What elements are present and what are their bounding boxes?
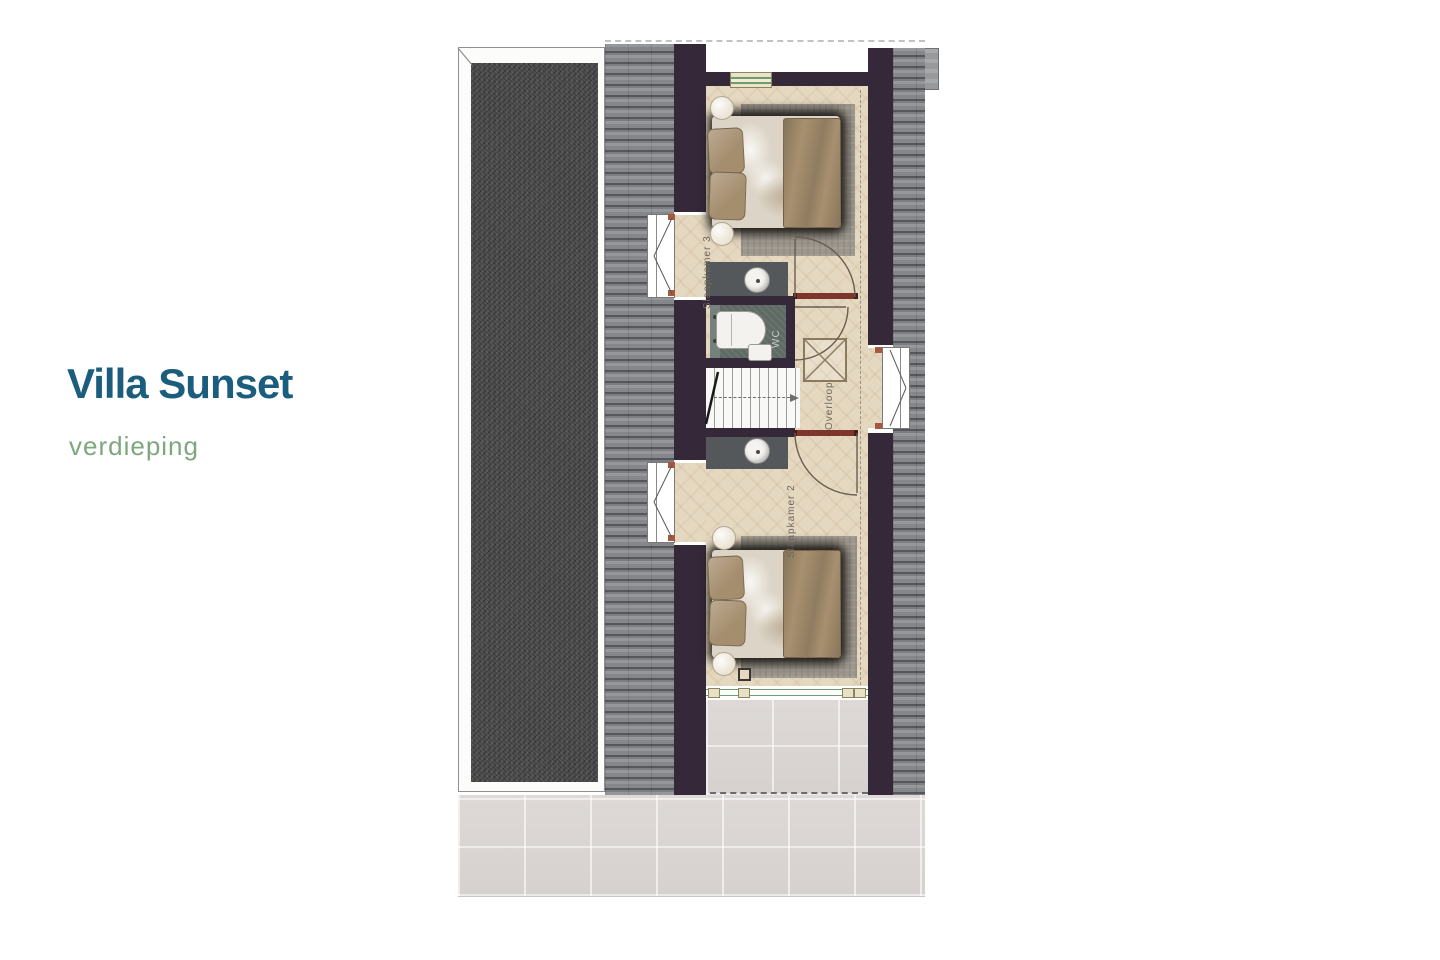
wall-east-upper: [868, 48, 893, 345]
washbasin-bedroom2: [744, 438, 770, 464]
window-jamb-mark: [875, 423, 882, 429]
window-jamb-mark: [668, 535, 675, 541]
bedroom2-rear-window: [706, 686, 868, 700]
wall-west-upper: [674, 44, 706, 212]
page-title: Villa Sunset: [67, 360, 292, 408]
window-jamb-mark: [875, 347, 882, 353]
washbasin-bedroom3: [744, 267, 770, 293]
window-mullion: [738, 688, 750, 698]
top-window: [730, 72, 772, 88]
bedside-stool: [712, 652, 736, 676]
door-threshold-bedroom2: [793, 430, 858, 436]
room-label-landing: Overloop: [824, 368, 835, 430]
top-recess: [706, 44, 868, 72]
flat-roof-surface: [471, 63, 598, 782]
bed3-pillow: [708, 171, 747, 220]
dormer2-floor: [675, 463, 706, 542]
bed2-blanket: [783, 550, 841, 658]
bed2-pillow: [707, 555, 745, 601]
terrace-dashed-line: [710, 792, 868, 794]
roof-slope-dashed-line: [860, 90, 861, 690]
roof-edge-dashed-line: [605, 40, 925, 42]
page-subtitle: verdieping: [69, 431, 199, 462]
room-label-bedroom3: Slaapkamer 3: [702, 217, 713, 309]
wall-east-lower: [868, 433, 893, 795]
door-threshold-bedroom3: [793, 293, 858, 299]
bed3-pillow: [707, 127, 745, 175]
room-label-wc: WC: [771, 308, 782, 348]
wc-handbasin: [748, 344, 772, 361]
wall-west-middle: [674, 300, 706, 460]
wall-stairs-bedroom2: [706, 428, 795, 437]
window-jamb-mark: [668, 290, 675, 296]
window-mullion: [842, 688, 854, 698]
dormer-window-landing: [882, 347, 910, 429]
pitched-roof-left: [605, 44, 674, 797]
window-mullion: [708, 688, 720, 698]
dormer-window-bedroom2: [647, 462, 675, 543]
window-jamb-mark: [668, 462, 675, 468]
window-jamb-mark: [668, 214, 675, 220]
bed2-pillow: [708, 599, 747, 646]
bedside-stool: [710, 96, 734, 120]
wall-west-lower: [674, 545, 706, 795]
floorplan-page: Villa Sunset verdieping: [0, 0, 1440, 960]
stair-direction-line: [714, 397, 790, 398]
dormer-landing-floor: [868, 348, 882, 428]
terrace-outer-tiles: [458, 795, 925, 897]
room-label-bedroom2: Slaapkamer 2: [786, 464, 797, 558]
window-mullion: [854, 688, 866, 698]
bedside-stool: [712, 526, 736, 550]
wall-bedroom3-wc: [706, 296, 795, 305]
bedside-stool: [710, 222, 734, 246]
bed3-blanket: [783, 118, 841, 228]
terrace-inner-tiles: [706, 700, 868, 795]
staircase: [706, 368, 800, 428]
floor-outlet-symbol: [738, 668, 751, 681]
dormer-window-bedroom3: [647, 214, 675, 298]
